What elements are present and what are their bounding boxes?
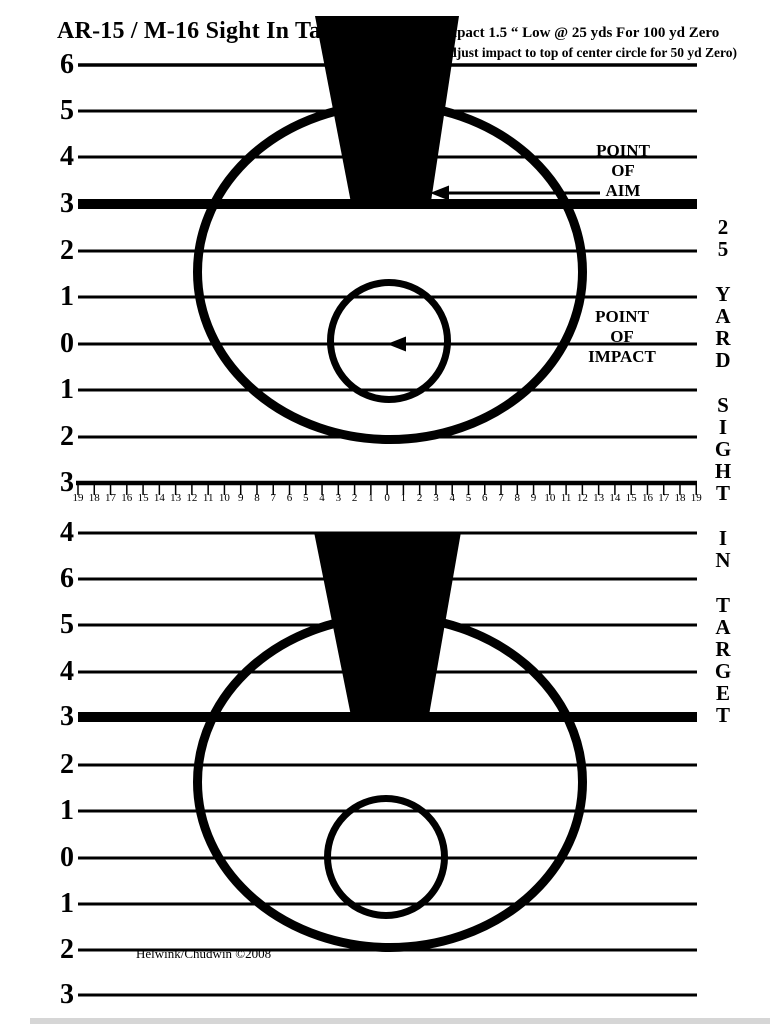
scale-label: 3 [28, 978, 74, 1012]
side-caption-letter: G [706, 437, 740, 461]
scale-label: 4 [28, 140, 74, 174]
scale-label: 5 [28, 94, 74, 128]
scale-label: 6 [28, 562, 74, 596]
scan-edge-artifact [30, 1018, 770, 1024]
side-caption-letter: H [706, 459, 740, 483]
scale-label: 4 [28, 516, 74, 550]
point-of-impact-text-line: OF [574, 327, 670, 347]
scale-label: 3 [28, 700, 74, 734]
scale-label: 1 [28, 794, 74, 828]
side-caption-letter: R [706, 637, 740, 661]
point-of-aim-text-line: AIM [583, 181, 663, 201]
scale-label: 1 [28, 373, 74, 407]
page-title: AR-15 / M-16 Sight In Target [57, 18, 363, 45]
side-caption-letter: A [706, 615, 740, 639]
impact-note-line1: Impact 1.5 “ Low @ 25 yds For 100 yd Zer… [438, 24, 720, 43]
scale-label: 2 [28, 933, 74, 967]
scale-label: 3 [28, 187, 74, 221]
side-caption-letter: I [706, 526, 740, 550]
side-caption-letter: S [706, 393, 740, 417]
point-of-impact-text-line: POINT [574, 307, 670, 327]
front-sight-post-bottom [314, 532, 461, 721]
side-caption-letter: G [706, 659, 740, 683]
side-caption-letter: T [706, 593, 740, 617]
side-caption-letter: A [706, 304, 740, 328]
side-caption-letter: 2 [706, 215, 740, 239]
scale-label: 1 [28, 280, 74, 314]
side-caption-letter: 5 [706, 237, 740, 261]
point-of-impact-text-line: IMPACT [574, 347, 670, 367]
point-of-impact-arrow-head [387, 337, 406, 352]
copyright-credit: Helwink/Chudwin ©2008 [136, 946, 271, 961]
side-caption-letter: T [706, 481, 740, 505]
scale-label: 1 [28, 887, 74, 921]
scale-label: 0 [28, 841, 74, 875]
side-caption-letter: D [706, 348, 740, 372]
side-caption-letter: R [706, 326, 740, 350]
scale-label: 0 [28, 327, 74, 361]
side-caption-letter: Y [706, 282, 740, 306]
side-caption-letter: T [706, 703, 740, 727]
impact-note-line2: (adjust impact to top of center circle f… [438, 43, 720, 62]
scale-label: 2 [28, 748, 74, 782]
point-of-aim-text-line: OF [583, 161, 663, 181]
scale-label: 5 [28, 608, 74, 642]
center-circle-top [331, 283, 448, 400]
point-of-aim-arrow-shaft [440, 192, 600, 195]
side-caption-letter: N [706, 548, 740, 572]
impact-note: Impact 1.5 “ Low @ 25 yds For 100 yd Zer… [438, 24, 720, 62]
side-caption-letter: E [706, 681, 740, 705]
point-of-aim-text-line: POINT [583, 141, 663, 161]
point-of-impact-label: POINTOFIMPACT [574, 307, 670, 367]
side-caption-letter: I [706, 415, 740, 439]
scale-label: 6 [28, 48, 74, 82]
sight-in-target-page: AR-15 / M-16 Sight In Target Impact 1.5 … [0, 0, 770, 1024]
scale-label: 4 [28, 655, 74, 689]
scale-label: 2 [28, 234, 74, 268]
scale-label: 2 [28, 420, 74, 454]
ruler-number: 19 [686, 492, 706, 504]
point-of-aim-label: POINTOFAIM [583, 141, 663, 201]
